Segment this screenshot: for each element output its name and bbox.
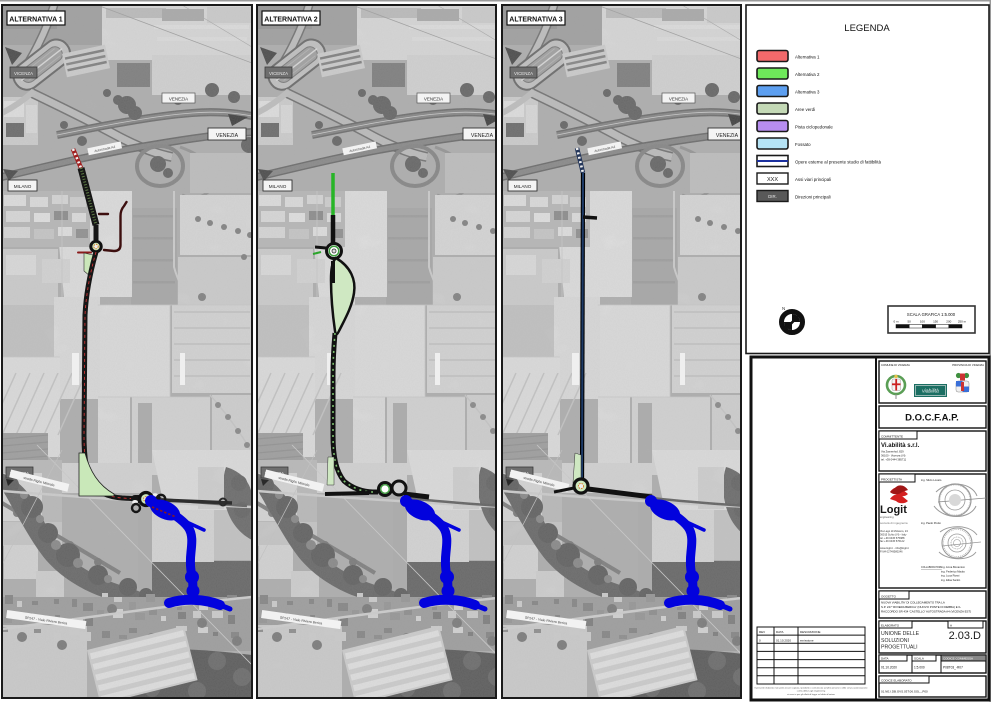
- svg-text:01.10.2020: 01.10.2020: [776, 639, 791, 643]
- svg-text:COMMITTENTE: COMMITTENTE: [881, 434, 903, 438]
- svg-text:Logit: Logit: [880, 504, 907, 516]
- svg-text:ing. Silvio Lovato: ing. Silvio Lovato: [921, 478, 942, 482]
- svg-text:ALTERNATIVA 1: ALTERNATIVA 1: [9, 17, 63, 24]
- svg-text:LEGENDA: LEGENDA: [844, 23, 890, 34]
- svg-text:società di ingegneria: società di ingegneria: [880, 521, 908, 525]
- svg-text:viabilità: viabilità: [922, 389, 939, 395]
- svg-text:COMUNE DI VICENZA: COMUNE DI VICENZA: [881, 363, 910, 367]
- svg-text:D.O.C.F.A.P.: D.O.C.F.A.P.: [905, 413, 959, 424]
- svg-text:P.IVA 02749580246: P.IVA 02749580246: [880, 549, 903, 553]
- svg-text:NUOVA VIABILITA' DI COLLEGAMEN: NUOVA VIABILITA' DI COLLEGAMENTO TRA LA: [881, 601, 945, 605]
- svg-text:DESCRIZIONE: DESCRIZIONE: [800, 630, 821, 634]
- svg-text:01.10.2020: 01.10.2020: [881, 666, 897, 670]
- svg-text:ALTERNATIVA 2: ALTERNATIVA 2: [264, 17, 318, 24]
- svg-text:Alternativa 3: Alternativa 3: [795, 90, 820, 95]
- svg-text:Fossato: Fossato: [795, 142, 811, 147]
- svg-text:SOLUZIONI: SOLUZIONI: [881, 638, 909, 644]
- svg-text:0 m: 0 m: [893, 320, 899, 324]
- svg-text:PROGETTUALI: PROGETTUALI: [881, 645, 918, 651]
- svg-text:N: N: [782, 306, 785, 311]
- svg-text:ing. Elisa Santin: ing. Elisa Santin: [941, 578, 961, 582]
- svg-text:ELABORATO: ELABORATO: [881, 623, 900, 627]
- svg-text:ing. Paolo Pretto: ing. Paolo Pretto: [921, 521, 941, 525]
- svg-text:Assi viari principali: Assi viari principali: [795, 177, 831, 182]
- svg-text:DATA: DATA: [776, 630, 784, 634]
- svg-text:PROVINCIA DI VICENZA: PROVINCIA DI VICENZA: [952, 363, 984, 367]
- svg-text:36015 Schio (VI) - Italy: 36015 Schio (VI) - Italy: [880, 532, 907, 536]
- svg-text:36100 - Vicenza (VI): 36100 - Vicenza (VI): [881, 454, 906, 458]
- svg-text:emissione: emissione: [800, 639, 814, 643]
- svg-text:100: 100: [920, 320, 925, 324]
- svg-text:tel. +39 0444 385711: tel. +39 0444 385711: [881, 458, 907, 462]
- svg-text:OGGETTO: OGGETTO: [881, 594, 897, 598]
- svg-text:PROGETTISTA: PROGETTISTA: [881, 477, 902, 481]
- svg-text:ai sensi e per gli effetti di: ai sensi e per gli effetti di legge sul …: [787, 693, 836, 696]
- svg-text:ing. Anna Bonamico: ing. Anna Bonamico: [941, 565, 965, 569]
- svg-text:XXX: XXX: [767, 177, 778, 183]
- svg-text:S.P. 247 'RIVIERA BERICA' (NUO: S.P. 247 'RIVIERA BERICA' (NUOVO PONTE D…: [881, 605, 961, 609]
- svg-text:ing. Luca Rossi: ing. Luca Rossi: [941, 574, 960, 578]
- svg-text:Pista ciclopedonale: Pista ciclopedonale: [795, 125, 833, 130]
- svg-text:2.03.D: 2.03.D: [949, 630, 981, 642]
- svg-text:01.NE.I.DB.GVS.03T.06.SOL._P00: 01.NE.I.DB.GVS.03T.06.SOL._P00: [881, 690, 928, 694]
- svg-text:1:5.000: 1:5.000: [914, 666, 925, 670]
- svg-text:50: 50: [908, 320, 912, 324]
- svg-text:Alternativa 2: Alternativa 2: [795, 72, 820, 77]
- svg-text:200: 200: [946, 320, 951, 324]
- svg-text:Via Lago di Molveno, 24: Via Lago di Molveno, 24: [880, 529, 908, 533]
- svg-text:Direzioni principali: Direzioni principali: [795, 195, 831, 200]
- svg-text:REV: REV: [759, 630, 765, 634]
- svg-text:Il presente elaborato non potr: Il presente elaborato non potrà essere c…: [755, 687, 869, 690]
- svg-text:A: A: [950, 624, 952, 628]
- svg-text:www.logit.it - info@logit.it: www.logit.it - info@logit.it: [880, 546, 909, 550]
- svg-text:ALTERNATIVA 3: ALTERNATIVA 3: [509, 17, 563, 24]
- svg-text:SCALA GRAFICA 1:5.000: SCALA GRAFICA 1:5.000: [907, 312, 956, 317]
- svg-text:scritta della Logit engineerin: scritta della Logit engineering: [797, 690, 826, 693]
- svg-text:Via Zamenhof, 829: Via Zamenhof, 829: [881, 450, 904, 454]
- svg-text:ing. Federico Maula: ing. Federico Maula: [941, 569, 965, 573]
- svg-text:RACCORDO SR 434 'CASTELLO' AUT: RACCORDO SR 434 'CASTELLO' AUTOSTRADA A4…: [881, 610, 971, 614]
- svg-text:engineering: engineering: [880, 515, 894, 519]
- svg-text:Vi.abilità s.r.l.: Vi.abilità s.r.l.: [881, 443, 920, 449]
- svg-text:SCALA: SCALA: [914, 656, 924, 660]
- svg-text:Aree verdi: Aree verdi: [795, 107, 815, 112]
- svg-text:tel. +39 0445 575988: tel. +39 0445 575988: [880, 536, 905, 540]
- svg-text:CODICE ELABORATO: CODICE ELABORATO: [881, 678, 912, 682]
- svg-text:COLLABORATORI:: COLLABORATORI:: [921, 566, 942, 569]
- svg-text:150: 150: [933, 320, 938, 324]
- svg-text:Alternativa 1: Alternativa 1: [795, 55, 820, 60]
- svg-text:CODICE COMMESSA: CODICE COMMESSA: [943, 656, 973, 660]
- svg-text:Opere esterne al presente stud: Opere esterne al presente studio di fatt…: [795, 160, 881, 165]
- svg-text:250 m: 250 m: [958, 320, 967, 324]
- svg-text:fax +39 0445 576122: fax +39 0445 576122: [880, 539, 905, 543]
- svg-text:P08T03_-R07: P08T03_-R07: [943, 666, 963, 670]
- svg-text:DATA: DATA: [881, 656, 889, 660]
- svg-text:UNIONE DELLE: UNIONE DELLE: [881, 631, 920, 637]
- svg-text:DIR.: DIR.: [768, 194, 777, 199]
